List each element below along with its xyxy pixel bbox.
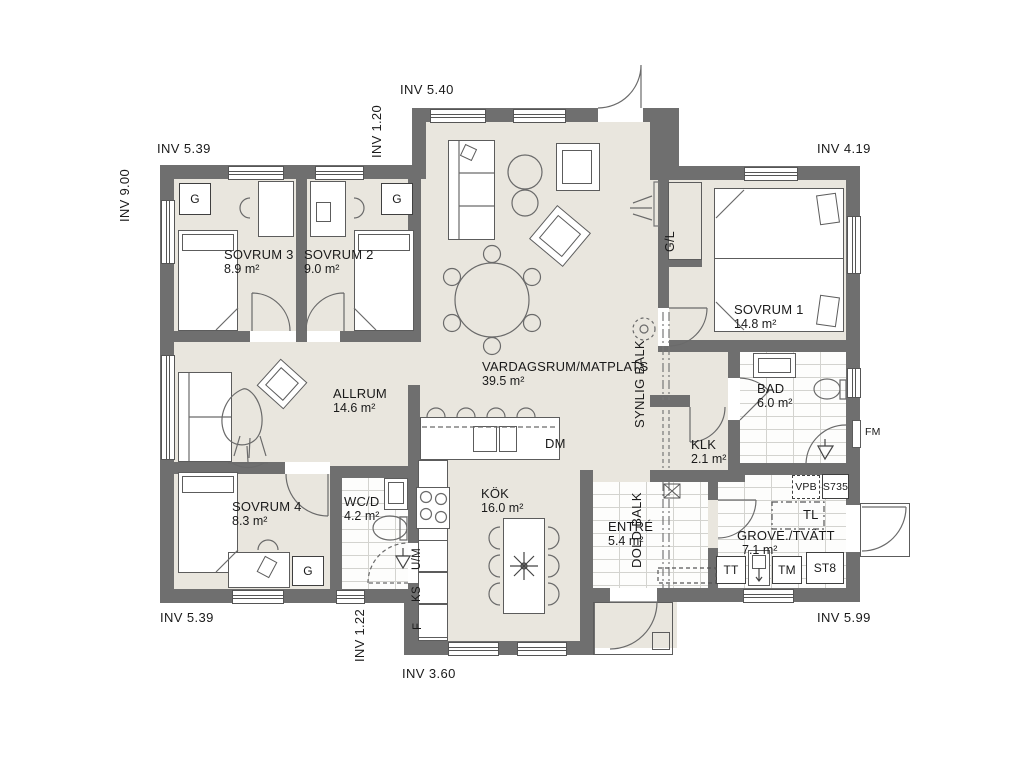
- room-area-vardagsrum: 39.5 m²: [482, 374, 524, 388]
- room-label-klk: KLK: [691, 437, 716, 452]
- dryer: TT: [716, 556, 746, 584]
- s735-label: S735: [823, 481, 848, 493]
- dining-table: [503, 518, 545, 614]
- pillow: [816, 295, 840, 327]
- desk: [258, 181, 294, 237]
- room-area-bad: 6.0 m²: [757, 396, 792, 410]
- washing-machine: TM: [772, 556, 802, 584]
- window: [847, 216, 861, 274]
- unit-s735: S735: [822, 474, 849, 499]
- vanity-bowl: [758, 358, 791, 373]
- dim-bottom-right: INV 5.99: [817, 610, 871, 625]
- stove-hob: [416, 487, 450, 529]
- window: [448, 642, 499, 656]
- room-area-klk: 2.1 m²: [691, 452, 726, 466]
- window: [430, 109, 486, 123]
- window: [228, 166, 284, 180]
- room-label-wcd: WC/D: [344, 494, 379, 509]
- vpb-label: VPB: [795, 481, 817, 493]
- cabinet-f-label: F: [411, 623, 426, 630]
- wall: [650, 470, 745, 482]
- dim-left: INV 9.00: [117, 169, 132, 222]
- window: [315, 166, 364, 180]
- wardrobe-label: G: [392, 192, 402, 206]
- fm-device: [852, 420, 861, 448]
- wall: [160, 165, 426, 179]
- wardrobe: G: [179, 183, 211, 215]
- window: [847, 368, 861, 398]
- side-porch: [860, 503, 910, 557]
- room-area-grovtvatt: 7.1 m²: [742, 543, 777, 557]
- door-opening: [846, 505, 860, 552]
- room-label-grovtvatt: GROVE./TVÄTT: [737, 528, 835, 543]
- wardrobe-label: G: [190, 192, 200, 206]
- wall: [668, 259, 702, 267]
- cabinet-ks-label: KS: [410, 586, 425, 602]
- window: [743, 589, 794, 603]
- sofa: [178, 372, 232, 462]
- room-area-sovrum1: 14.8 m²: [734, 317, 776, 331]
- door-opening: [610, 588, 657, 602]
- dim-left-offset: INV 1.20: [369, 105, 384, 158]
- door-opening: [728, 378, 740, 420]
- window: [336, 590, 365, 604]
- window: [161, 200, 175, 264]
- washing-machine-label: TM: [778, 563, 796, 577]
- wall: [728, 352, 740, 378]
- porch-step: [652, 632, 670, 650]
- cabinet-st8: ST8: [806, 552, 844, 584]
- cabinet-um-label: U/M: [410, 548, 425, 570]
- room-label-allrum: ALLRUM: [333, 386, 387, 401]
- wall: [330, 466, 342, 589]
- wall: [340, 331, 408, 342]
- wall: [658, 340, 846, 352]
- window: [232, 590, 284, 604]
- wall: [708, 482, 718, 500]
- pillow: [182, 476, 234, 493]
- dryer-label: TT: [723, 563, 738, 577]
- dim-top-left: INV 5.39: [157, 141, 211, 156]
- window: [513, 109, 566, 123]
- cabinet-f: [418, 604, 448, 638]
- laundry-sink-bowl: [752, 555, 766, 569]
- door-opening: [307, 331, 340, 342]
- door-opening: [285, 462, 330, 474]
- room-area-wcd: 4.2 m²: [344, 509, 379, 523]
- wardrobe-label: G: [303, 564, 313, 578]
- dim-bottom-mid: INV 3.60: [402, 666, 456, 681]
- room-label-bad: BAD: [757, 381, 784, 396]
- water-heater-vpb: VPB: [792, 475, 820, 499]
- door-opening: [250, 331, 296, 342]
- window: [517, 642, 567, 656]
- dim-bottom-left: INV 5.39: [160, 610, 214, 625]
- wall: [580, 470, 593, 589]
- room-label-kok: KÖK: [481, 486, 509, 501]
- wall: [160, 589, 420, 603]
- wall: [650, 395, 690, 407]
- sink-basin: [499, 426, 517, 452]
- window: [161, 355, 175, 460]
- room-area-kok: 16.0 m²: [481, 501, 523, 515]
- door-opening: [598, 108, 643, 122]
- closet-label-gl: G/L: [663, 231, 678, 252]
- wall: [174, 331, 250, 342]
- room-label-sovrum3: SOVRUM 3: [224, 247, 294, 262]
- beam-label-dold: DOLD BALK: [629, 492, 644, 568]
- room-area-sovrum3: 8.9 m²: [224, 262, 259, 276]
- window: [744, 167, 798, 181]
- room-label-sovrum2: SOVRUM 2: [304, 247, 374, 262]
- computer-monitor: [316, 202, 331, 222]
- dishwasher-label: DM: [545, 436, 566, 451]
- room-area-allrum: 14.6 m²: [333, 401, 375, 415]
- room-label-vardagsrum: VARDAGSRUM/MATPLATS: [482, 359, 648, 374]
- cabinet-st8-label: ST8: [814, 561, 837, 575]
- dim-bottom-offset: INV 1.22: [352, 609, 367, 662]
- room-area-sovrum4: 8.3 m²: [232, 514, 267, 528]
- sink-basin: [473, 426, 497, 452]
- room-area-sovrum2: 9.0 m²: [304, 262, 339, 276]
- washbasin-bowl: [388, 482, 404, 504]
- beam-label-synlig: SYNLIG BALK: [632, 340, 647, 428]
- wardrobe: G: [381, 183, 413, 215]
- room-label-sovrum4: SOVRUM 4: [232, 499, 302, 514]
- door-opening: [658, 308, 669, 346]
- fm-label: FM: [865, 426, 881, 438]
- pillow: [816, 193, 840, 225]
- armchair-seat: [562, 150, 592, 184]
- room-label-sovrum1: SOVRUM 1: [734, 302, 804, 317]
- dim-top-right: INV 4.19: [817, 141, 871, 156]
- dim-top-mid: INV 5.40: [400, 82, 454, 97]
- floor-plan: G G G TT TM ST8 VPB S735: [0, 0, 1024, 768]
- wardrobe: G: [292, 556, 324, 586]
- tl-label: TL: [803, 507, 819, 522]
